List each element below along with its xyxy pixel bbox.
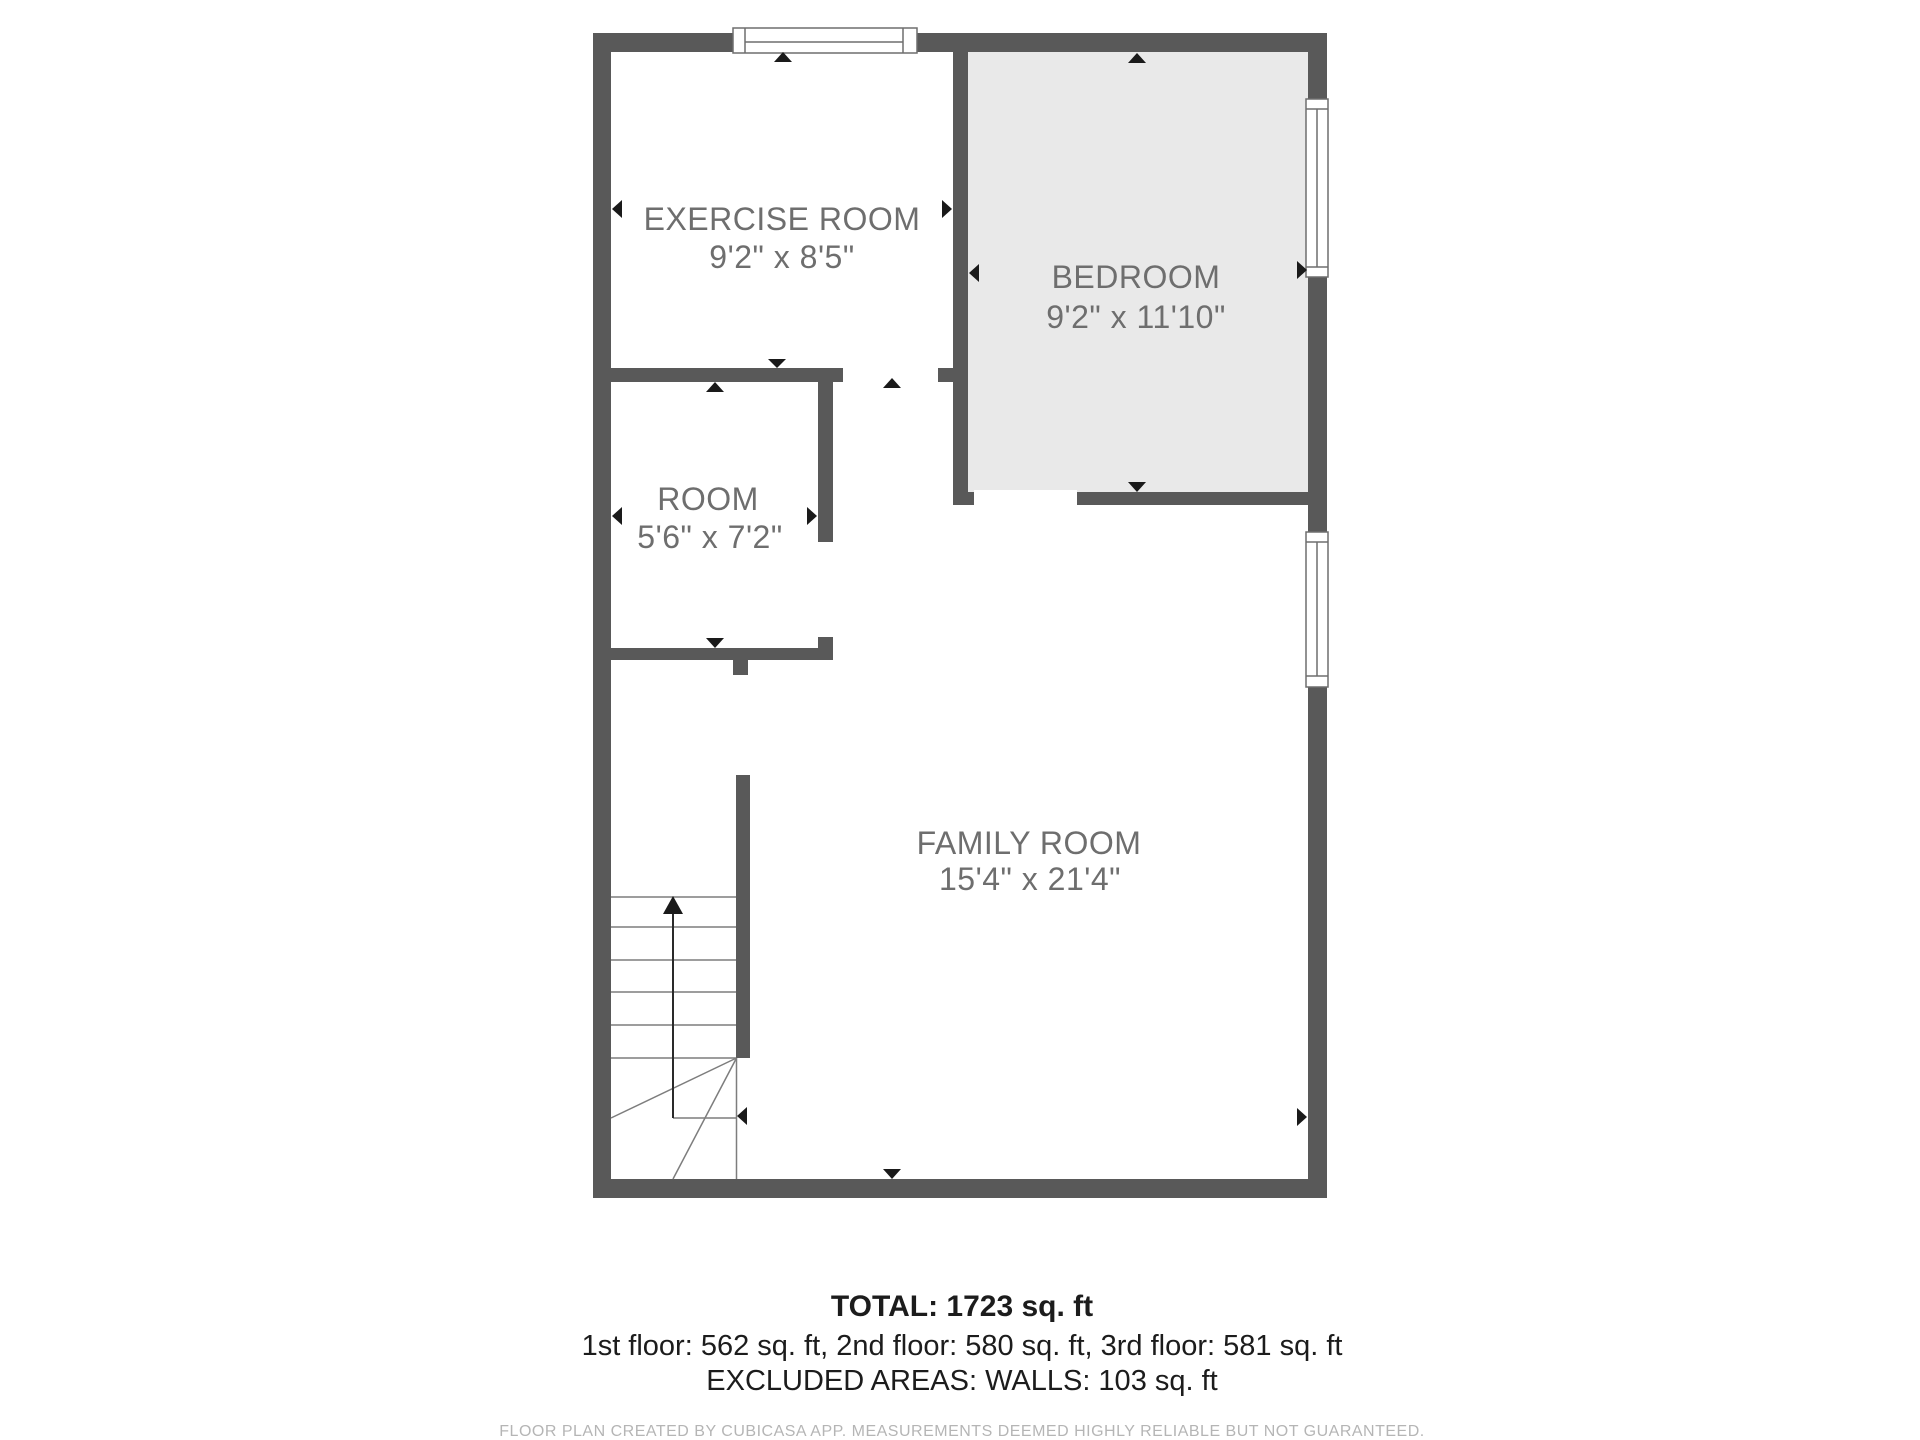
wall-room-bottom: [611, 648, 833, 660]
family-room-window: [1306, 532, 1328, 687]
floor-plan-page: EXERCISE ROOM 9'2" x 8'5" BEDROOM 9'2" x…: [0, 0, 1920, 1440]
bedroom-window: [1306, 99, 1328, 277]
arrow-right-icon: [807, 507, 817, 525]
arrow-right-icon: [1297, 1108, 1307, 1126]
total-area-text: TOTAL: 1723 sq. ft: [831, 1290, 1093, 1323]
wall-room-right: [818, 368, 833, 542]
wall-top: [593, 33, 1327, 52]
arrow-left-icon: [612, 507, 622, 525]
arrow-down-icon: [883, 1169, 901, 1179]
arrow-down-icon: [768, 359, 786, 368]
summary-block: TOTAL: 1723 sq. ft 1st floor: 562 sq. ft…: [582, 1290, 1343, 1397]
room-labels: EXERCISE ROOM 9'2" x 8'5" BEDROOM 9'2" x…: [637, 201, 1226, 897]
wall-stair-stub: [733, 660, 748, 675]
door-opening-bedroom: [974, 490, 1077, 507]
floor-areas-text: 1st floor: 562 sq. ft, 2nd floor: 580 sq…: [582, 1330, 1343, 1362]
bedroom-dimensions: 9'2" x 11'10": [1046, 299, 1226, 335]
top-wall-window: [733, 28, 917, 53]
arrow-right-icon: [942, 200, 952, 218]
wall-exercise-bottom-stub: [938, 368, 953, 382]
wall-stairwell: [736, 775, 750, 1058]
family-room-dimensions: 15'4" x 21'4": [939, 861, 1121, 897]
arrow-up-icon: [706, 382, 724, 392]
disclaimer-text: FLOOR PLAN CREATED BY CUBICASA APP. MEAS…: [499, 1423, 1424, 1440]
wall-exercise-bottom: [611, 368, 843, 382]
excluded-areas-text: EXCLUDED AREAS: WALLS: 103 sq. ft: [706, 1365, 1217, 1397]
wall-left: [593, 33, 611, 1198]
arrow-down-icon: [706, 638, 724, 648]
exercise-room-label: EXERCISE ROOM: [644, 201, 921, 237]
wall-bedroom-bottom: [1077, 492, 1308, 505]
door-opening-room: [816, 542, 835, 637]
arrow-left-icon: [737, 1107, 747, 1125]
room-label: ROOM: [657, 481, 759, 517]
floor-plan-canvas: EXERCISE ROOM 9'2" x 8'5" BEDROOM 9'2" x…: [0, 0, 1920, 1440]
wall-bedroom-left: [953, 52, 968, 505]
wall-bedroom-bottom-left: [953, 492, 974, 505]
bedroom-label: BEDROOM: [1052, 259, 1221, 295]
staircase: [611, 896, 737, 1179]
door-opening-stair-hall: [734, 675, 752, 775]
wall-bottom: [593, 1179, 1327, 1198]
exercise-room-dimensions: 9'2" x 8'5": [709, 239, 854, 275]
room-dimensions: 5'6" x 7'2": [637, 519, 782, 555]
arrow-left-icon: [612, 200, 622, 218]
family-room-label: FAMILY ROOM: [917, 825, 1142, 861]
